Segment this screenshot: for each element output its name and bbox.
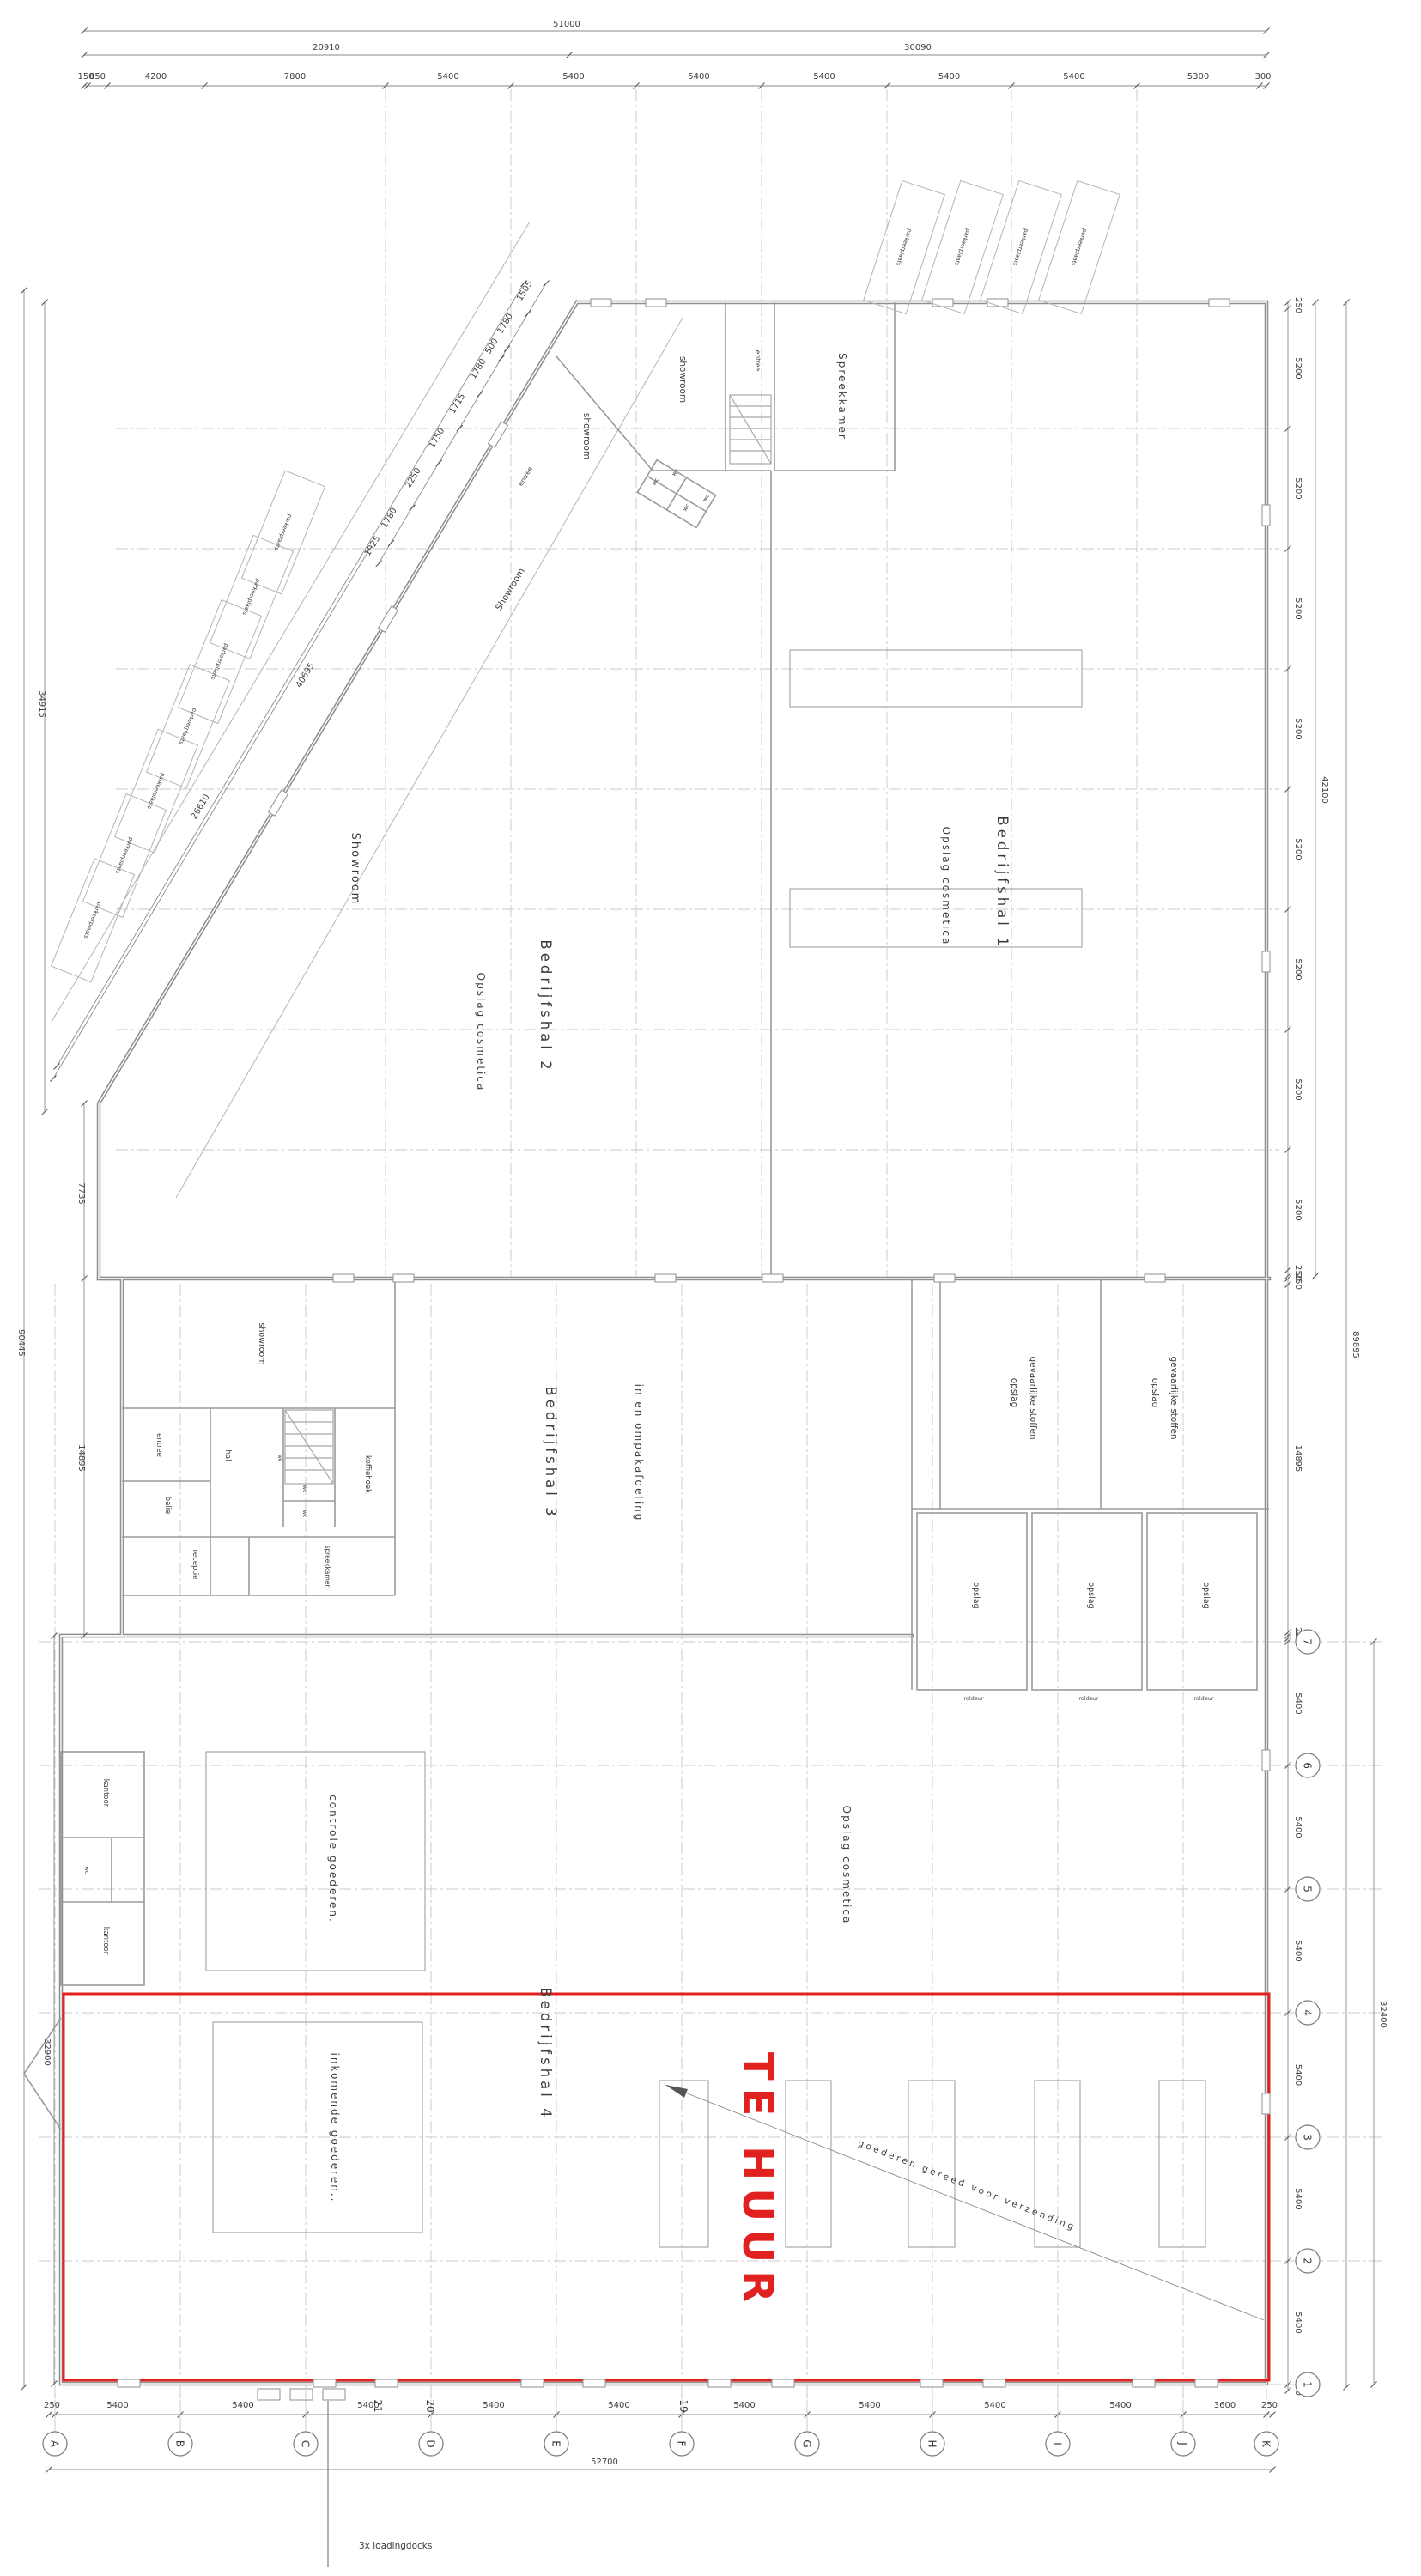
wall-opening-diagonal bbox=[268, 790, 288, 816]
parking-slot-label: parkeerplaats bbox=[895, 228, 914, 267]
dim-value: 5300 bbox=[1187, 72, 1209, 82]
dim-42100: 42100 bbox=[1320, 776, 1329, 804]
grid-bubble-number: 3 bbox=[1302, 2134, 1314, 2141]
grid-bubble-number: 4 bbox=[1302, 2009, 1314, 2016]
dim-value: 5400 bbox=[232, 2401, 253, 2410]
parking-slot-label: parkeerplaats bbox=[272, 513, 293, 552]
door-21: 21 bbox=[372, 2399, 384, 2412]
structural-grid bbox=[39, 89, 1384, 2444]
dimension-chains: 1508504200780054005400540054005400540053… bbox=[21, 28, 1377, 2473]
dim-value: 5200 bbox=[1293, 1199, 1303, 1220]
dim-tick bbox=[525, 310, 531, 316]
dim-14895-left: 14895 bbox=[76, 1444, 86, 1472]
wall-opening bbox=[1145, 1274, 1165, 1282]
wall-opening bbox=[1133, 2379, 1155, 2387]
dim-value: 5400 bbox=[106, 2401, 128, 2410]
gevaarlijk2-l1: opslag bbox=[1150, 1378, 1160, 1408]
dim-value: 250 bbox=[1293, 1273, 1303, 1290]
dim-value: 5400 bbox=[984, 2401, 1005, 2410]
door-20: 20 bbox=[424, 2399, 436, 2412]
hal2-title: Bedrijfshal 2 bbox=[537, 939, 554, 1072]
kantoor-block bbox=[24, 1752, 144, 2129]
storage-walls bbox=[912, 1279, 1269, 1690]
gevaarlijk1-l1: opslag bbox=[1009, 1378, 1019, 1408]
wall-opening bbox=[762, 1274, 783, 1282]
dim-value: 5200 bbox=[1293, 838, 1303, 860]
dim-tick bbox=[51, 1076, 57, 1082]
dim-value: 14895 bbox=[1293, 1445, 1303, 1473]
grid-bubble-letter: F bbox=[676, 2441, 688, 2447]
floor-plan-canvas: 1508504200780054005400540054005400540053… bbox=[0, 0, 1421, 2576]
dimension-lines bbox=[24, 31, 1374, 2470]
receptie-label: receptie bbox=[191, 1550, 199, 1580]
wall-openings bbox=[118, 299, 1270, 2387]
gevaarlijk2-l2: gevaarlijke stoffen bbox=[1169, 1356, 1179, 1439]
roldeur-3: roldeur bbox=[1193, 1695, 1214, 1702]
dim-tick bbox=[498, 355, 504, 361]
dim-value: 5400 bbox=[437, 72, 458, 82]
dim-30090: 30090 bbox=[904, 43, 932, 52]
showroom-office-label: showroom bbox=[257, 1322, 266, 1364]
te-huur-label: TE HUUR bbox=[733, 2052, 781, 2310]
dim-value-diagonal: 1780 bbox=[469, 357, 489, 380]
wc-kantoor: wc bbox=[83, 1867, 90, 1874]
rack-block bbox=[790, 889, 1082, 947]
parking-slot-label: parkeerplaats bbox=[953, 228, 972, 267]
wall-opening bbox=[118, 2379, 140, 2387]
grid-bubble-letter: J bbox=[1177, 2441, 1189, 2445]
parking-slot-label: parkeerplaats bbox=[145, 772, 166, 811]
dim-value: 5400 bbox=[562, 72, 584, 82]
loadingdocks-label: 3x loadingdocks bbox=[359, 2541, 432, 2551]
balie-label: balie bbox=[163, 1497, 172, 1515]
grid-bubble-number: 1 bbox=[1302, 2381, 1314, 2388]
wall-opening bbox=[708, 2379, 731, 2387]
wall-opening bbox=[772, 2379, 794, 2387]
wall-opening-diagonal bbox=[378, 606, 398, 632]
grid-bubble-letter: B bbox=[174, 2440, 186, 2447]
parking-slot: parkeerplaats bbox=[922, 181, 1004, 314]
dim-value-diagonal: 1780 bbox=[380, 507, 399, 530]
dim-51000: 51000 bbox=[553, 20, 580, 29]
dim-value: 5400 bbox=[938, 72, 960, 82]
wall-opening bbox=[983, 2379, 1005, 2387]
dim-value: 5200 bbox=[1293, 357, 1303, 379]
gevaarlijk1-l2: gevaarlijke stoffen bbox=[1028, 1356, 1038, 1439]
dim-value-diagonal: 2250 bbox=[404, 466, 423, 489]
wc-office-2: wc bbox=[301, 1510, 308, 1518]
hal3-title: Bedrijfshal 3 bbox=[543, 1386, 559, 1519]
rack-block bbox=[786, 2081, 831, 2247]
grid-bubble-number: 5 bbox=[1302, 1886, 1314, 1893]
grid-bubbles: ABCDEFGHIJK7654321 bbox=[43, 1630, 1320, 2456]
entree-label: entree bbox=[754, 350, 762, 372]
spreekkamer-label: Spreekkamer bbox=[836, 353, 848, 440]
rack-block bbox=[659, 2081, 708, 2247]
roldeur-2: roldeur bbox=[1078, 1695, 1099, 1702]
wall-opening bbox=[591, 299, 611, 307]
dim-value: 5400 bbox=[608, 2401, 629, 2410]
entree-office-label: entree bbox=[155, 1433, 163, 1457]
dim-90445: 90445 bbox=[16, 1329, 26, 1357]
dim-value: 7800 bbox=[284, 72, 306, 82]
wall-opening bbox=[1262, 1750, 1270, 1771]
parking-slot-label: parkeerplaats bbox=[82, 901, 102, 939]
inner-diagonal-line bbox=[176, 318, 683, 1198]
hal1-title: Bedrijfshal 1 bbox=[994, 816, 1011, 949]
hal2-use: Opslag cosmetica bbox=[475, 973, 487, 1092]
dim-value-diagonal: 500 bbox=[483, 337, 500, 355]
inkomende-label: inkomende goederen.. bbox=[329, 2053, 341, 2203]
grid-bubble-letter: D bbox=[425, 2439, 437, 2447]
dim-value: 5200 bbox=[1293, 477, 1303, 499]
grid-bubble-letter: G bbox=[801, 2439, 813, 2447]
dim-value: 3600 bbox=[1214, 2401, 1236, 2410]
wall-opening bbox=[1262, 951, 1270, 972]
grid-bubble-number: 2 bbox=[1302, 2257, 1314, 2264]
parking-slot-label: parkeerplaats bbox=[1070, 228, 1089, 267]
entree-diag-label: entree bbox=[517, 465, 535, 488]
rack-block bbox=[1159, 2081, 1205, 2247]
grid-bubble-letter: C bbox=[300, 2440, 312, 2447]
dim-tick bbox=[477, 391, 483, 397]
dim-value: 5400 bbox=[1293, 1816, 1303, 1838]
dim-value: 5400 bbox=[1063, 72, 1084, 82]
dim-tick bbox=[410, 505, 416, 511]
wc-label-1: wc bbox=[651, 477, 661, 487]
dim-value-diagonal: 1025 bbox=[363, 534, 383, 557]
hal4-use: Opslag cosmetica bbox=[841, 1806, 853, 1925]
hal4-title: Bedrijfshal 4 bbox=[537, 1987, 554, 2120]
parking-slot-label: parkeerplaats bbox=[113, 836, 134, 875]
dim-value: 300 bbox=[1254, 72, 1271, 82]
dim-value: 5200 bbox=[1293, 1078, 1303, 1100]
rack-block bbox=[790, 650, 1082, 707]
wall-opening bbox=[934, 1274, 955, 1282]
opslag-2: opslag bbox=[1086, 1582, 1096, 1608]
dim-26610: 26610 bbox=[190, 793, 212, 821]
dim-value: 5400 bbox=[688, 72, 709, 82]
inkomende-goederen-area bbox=[213, 2022, 422, 2233]
opslag-3: opslag bbox=[1201, 1582, 1211, 1608]
parking-slot: parkeerplaats bbox=[981, 181, 1062, 314]
parking-slot: parkeerplaats bbox=[1039, 181, 1120, 314]
door-19: 19 bbox=[677, 2399, 689, 2412]
dim-value-diagonal: 1505 bbox=[515, 279, 535, 302]
dim-tick bbox=[504, 346, 510, 352]
wk-label: wk bbox=[276, 1454, 283, 1461]
hal-label: hal bbox=[223, 1450, 232, 1461]
grid-bubble-letter: E bbox=[550, 2440, 562, 2447]
dim-value: 5400 bbox=[1293, 1940, 1303, 1961]
dim-value: 5400 bbox=[1293, 2064, 1303, 2086]
dim-tick bbox=[376, 561, 382, 567]
wall-opening bbox=[333, 1274, 354, 1282]
showroom-strip-label: Showroom bbox=[349, 833, 361, 906]
dim-34915: 34915 bbox=[37, 690, 46, 718]
dim-value: 5400 bbox=[483, 2401, 504, 2410]
dim-value-diagonal: 1715 bbox=[448, 392, 468, 416]
dim-value: 5400 bbox=[733, 2401, 755, 2410]
wc-label-3: wc bbox=[682, 502, 692, 513]
showroom-diag-label: Showroom bbox=[494, 567, 527, 613]
grid-bubble-number: 6 bbox=[1302, 1762, 1314, 1769]
wall-opening bbox=[313, 2379, 336, 2387]
wall-opening-diagonal bbox=[488, 422, 507, 447]
roldeur-1: roldeur bbox=[963, 1695, 984, 1702]
wall-opening bbox=[920, 2379, 943, 2387]
dim-20910: 20910 bbox=[313, 43, 340, 52]
dim-tick bbox=[436, 460, 442, 466]
controle-label: controle goederen. bbox=[327, 1795, 339, 1923]
dim-value: 5200 bbox=[1293, 958, 1303, 980]
entrance-canopy bbox=[24, 2018, 61, 2129]
wall-opening bbox=[393, 1274, 414, 1282]
opslag-1: opslag bbox=[971, 1582, 981, 1608]
koffiehoek-label: koffiehoek bbox=[363, 1455, 372, 1493]
dim-52700: 52700 bbox=[591, 2458, 618, 2467]
wall-opening bbox=[1262, 505, 1270, 526]
wall-opening bbox=[932, 299, 953, 307]
wall-opening bbox=[646, 299, 666, 307]
dim-value: 250 bbox=[44, 2401, 60, 2410]
showroom-b-label: showroom bbox=[581, 413, 592, 459]
dim-value-diagonal: 1780 bbox=[495, 312, 515, 335]
spreekkamer-office-label: spreekkamer bbox=[324, 1546, 331, 1589]
kantoor-2: kantoor bbox=[101, 1927, 110, 1955]
dim-value: 5400 bbox=[859, 2401, 880, 2410]
grid-bubble-letter: I bbox=[1052, 2442, 1064, 2445]
dim-32400: 32400 bbox=[1378, 2001, 1388, 2028]
dim-40695: 40695 bbox=[295, 661, 317, 690]
wall-opening bbox=[375, 2379, 398, 2387]
wall-opening bbox=[655, 1274, 676, 1282]
wall-opening bbox=[1209, 299, 1230, 307]
dim-7735: 7735 bbox=[76, 1182, 86, 1204]
wc-office-1: wc bbox=[301, 1485, 308, 1493]
kantoor-1: kantoor bbox=[101, 1779, 110, 1807]
parking-slot-label: parkeerplaats bbox=[209, 642, 229, 681]
outer-walls bbox=[61, 302, 1269, 2384]
dim-value: 250 bbox=[1293, 297, 1303, 313]
parking-slot-label: parkeerplaats bbox=[177, 708, 197, 746]
dim-tick bbox=[544, 281, 550, 287]
dim-89895: 89895 bbox=[1351, 1331, 1360, 1358]
controle-goederen-area bbox=[206, 1752, 425, 1971]
wall-opening bbox=[521, 2379, 544, 2387]
dim-value: 250 bbox=[1261, 2401, 1278, 2410]
grid-bubble-letter: H bbox=[926, 2439, 938, 2447]
hal1-use: Opslag cosmetica bbox=[940, 827, 952, 946]
grid-bubble-number: 7 bbox=[1302, 1638, 1314, 1645]
dim-32900: 32900 bbox=[42, 2038, 52, 2066]
wall-opening bbox=[1195, 2379, 1218, 2387]
wall-opening bbox=[1262, 2093, 1270, 2114]
parking-slot-label: parkeerplaats bbox=[240, 578, 261, 617]
dim-tick bbox=[388, 540, 394, 546]
parking-slot-label: parkeerplaats bbox=[1011, 228, 1030, 267]
loading-docks bbox=[258, 2389, 345, 2567]
dim-value: 5400 bbox=[813, 72, 835, 82]
te-huur-outline bbox=[64, 1994, 1269, 2380]
dim-value: 5400 bbox=[1293, 2312, 1303, 2333]
dim-value: 5200 bbox=[1293, 718, 1303, 739]
grid-bubble-letter: A bbox=[49, 2440, 61, 2448]
dim-value: 5400 bbox=[1293, 1692, 1303, 1714]
dim-value: 4200 bbox=[145, 72, 167, 82]
showroom-a-label: showroom bbox=[677, 356, 688, 403]
wall-opening bbox=[583, 2379, 605, 2387]
dim-value-diagonal: 1750 bbox=[428, 427, 447, 450]
dim-value: 850 bbox=[89, 72, 106, 82]
dim-value: 5400 bbox=[1109, 2401, 1131, 2410]
wc-label-4: wc bbox=[701, 493, 712, 503]
grid-bubble-letter: K bbox=[1260, 2440, 1272, 2448]
dim-value: 5400 bbox=[1293, 2188, 1303, 2209]
parking-slot: parkeerplaats bbox=[864, 181, 945, 314]
hal3-use: in en ompakafdeling bbox=[633, 1384, 645, 1522]
dim-value: 5200 bbox=[1293, 598, 1303, 619]
verzending-label: goederen gereed voor verzending bbox=[857, 2138, 1078, 2233]
